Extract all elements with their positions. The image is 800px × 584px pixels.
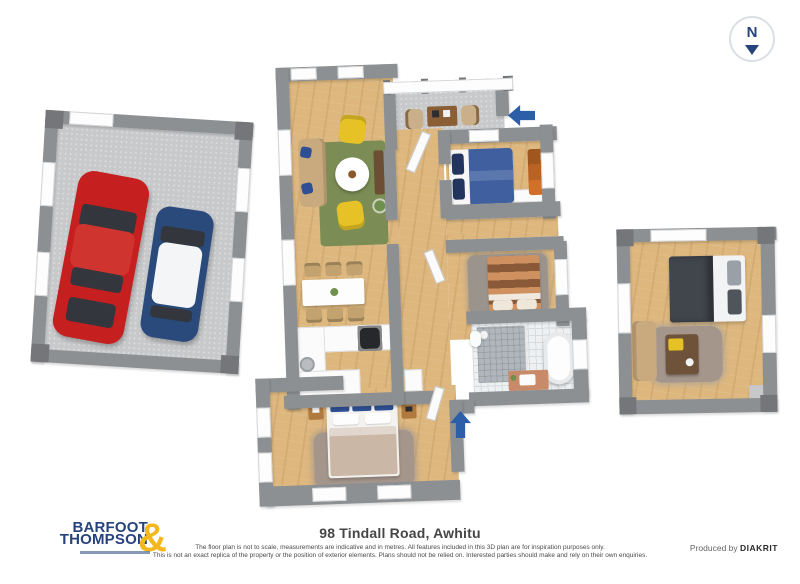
dining-chair: [346, 261, 362, 276]
armchair: [336, 200, 366, 231]
wall-post: [45, 110, 64, 129]
compass-north-label: N: [731, 24, 773, 41]
wall: [495, 88, 509, 116]
wall: [469, 388, 589, 406]
dining-chair: [304, 263, 320, 278]
entry-chair: [405, 109, 424, 130]
desk-items: [432, 110, 439, 117]
dining-chair: [327, 308, 343, 323]
car-trunk-window: [65, 296, 117, 328]
window: [290, 68, 316, 81]
wall: [619, 398, 777, 415]
window: [541, 152, 555, 188]
window: [617, 283, 631, 333]
disclaimer-line-1: The floor plan is not to scale, measurem…: [0, 544, 800, 551]
produced-by-brand: DIAKRIT: [740, 543, 778, 553]
toilet: [470, 331, 482, 347]
bed-double: [448, 148, 514, 205]
wall-post: [619, 397, 636, 414]
produced-by-prefix: Produced by: [690, 543, 738, 553]
window: [278, 129, 293, 175]
floorplan-page: N: [0, 0, 800, 584]
stove: [357, 325, 382, 351]
window: [281, 239, 296, 285]
sleepout-building: [608, 218, 797, 426]
produced-by: Produced by DIAKRIT: [690, 543, 778, 553]
disclaimer-line-2: This is not an exact replica of the prop…: [0, 552, 800, 559]
window: [258, 452, 273, 482]
dining-chair: [325, 262, 341, 277]
sofa-pillow: [301, 182, 314, 195]
dining-chair: [306, 308, 322, 323]
laundry-appliance: [404, 369, 423, 392]
wall: [438, 130, 451, 164]
main-house-building: [242, 49, 658, 515]
compass-arrow-icon: [745, 45, 759, 55]
window: [469, 129, 499, 142]
window: [572, 339, 588, 370]
bay-window: [377, 484, 411, 499]
window: [40, 162, 56, 207]
window: [650, 229, 706, 242]
wall: [383, 88, 397, 150]
bed-double: [487, 255, 541, 313]
dining-chair: [348, 307, 364, 322]
desk-items: [443, 110, 450, 117]
entry-chair: [461, 105, 480, 126]
vanity: [508, 370, 549, 391]
bay-window: [312, 487, 346, 502]
property-address: 98 Tindall Road, Awhitu: [0, 525, 800, 541]
wall-post: [757, 227, 774, 244]
wall-post: [760, 395, 777, 412]
armchair: [338, 114, 367, 145]
window: [762, 315, 777, 353]
sofa-pillow: [300, 146, 313, 159]
compass: N: [729, 16, 775, 62]
window: [69, 111, 114, 127]
bed-double: [669, 255, 746, 322]
window: [35, 252, 51, 297]
sofa: [632, 321, 657, 381]
garage-building: [31, 110, 254, 374]
wall-post: [220, 355, 239, 374]
window: [230, 258, 246, 303]
window: [337, 66, 363, 79]
car-roof: [151, 241, 204, 309]
window: [256, 407, 271, 437]
window: [554, 259, 568, 295]
wall-post: [31, 343, 50, 362]
wall: [383, 150, 397, 220]
coffee-table: [665, 334, 699, 375]
wall-post: [616, 229, 633, 246]
